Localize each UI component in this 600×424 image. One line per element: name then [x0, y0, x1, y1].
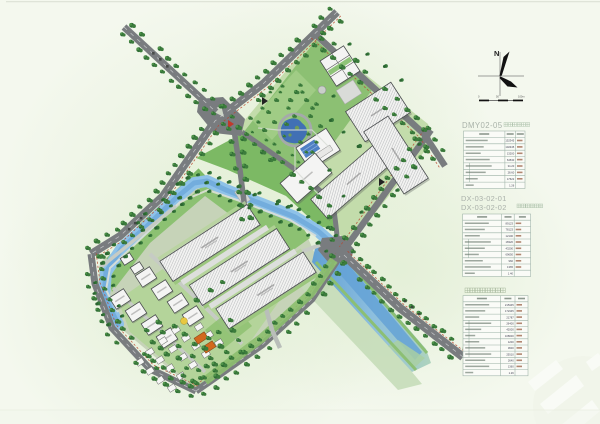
svg-text:12100: 12100 [506, 234, 514, 238]
svg-text:17622: 17622 [507, 177, 515, 181]
svg-text:18320: 18320 [506, 240, 514, 244]
svg-text:78123: 78123 [506, 228, 514, 232]
svg-text:34.20: 34.20 [508, 164, 515, 168]
svg-text:102345: 102345 [505, 145, 514, 149]
svg-text:69650: 69650 [506, 253, 514, 257]
svg-text:N: N [494, 49, 499, 58]
svg-text:2640: 2640 [508, 359, 514, 363]
svg-text:108000: 108000 [505, 334, 514, 338]
svg-text:25510: 25510 [506, 352, 514, 356]
svg-text:89123: 89123 [506, 222, 514, 226]
svg-text:DX-03-02-02: DX-03-02-02 [461, 203, 507, 212]
svg-text:DMY02-05: DMY02-05 [462, 121, 503, 130]
svg-text:100m: 100m [518, 95, 525, 99]
svg-text:43200: 43200 [506, 247, 514, 251]
svg-text:64530: 64530 [507, 158, 515, 162]
svg-text:1.26: 1.26 [509, 183, 515, 187]
svg-text:1200: 1200 [508, 340, 514, 344]
svg-text:3600: 3600 [508, 346, 514, 350]
svg-text:28.60: 28.60 [508, 171, 515, 175]
svg-text:13200: 13200 [507, 152, 515, 156]
svg-text:1365: 1365 [507, 265, 513, 269]
svg-text:960: 960 [509, 259, 514, 263]
svg-text:1360: 1360 [508, 365, 514, 369]
svg-text:1.26: 1.26 [509, 371, 515, 375]
svg-text:215345: 215345 [505, 303, 514, 307]
svg-text:172345: 172345 [505, 309, 514, 313]
svg-text:42000: 42000 [506, 328, 514, 332]
svg-text:1.40: 1.40 [508, 272, 514, 276]
svg-text:21787: 21787 [506, 315, 514, 319]
svg-text:152345: 152345 [505, 139, 514, 143]
svg-text:26400: 26400 [506, 322, 514, 326]
svg-text:DX-03-02-01: DX-03-02-01 [461, 194, 507, 203]
